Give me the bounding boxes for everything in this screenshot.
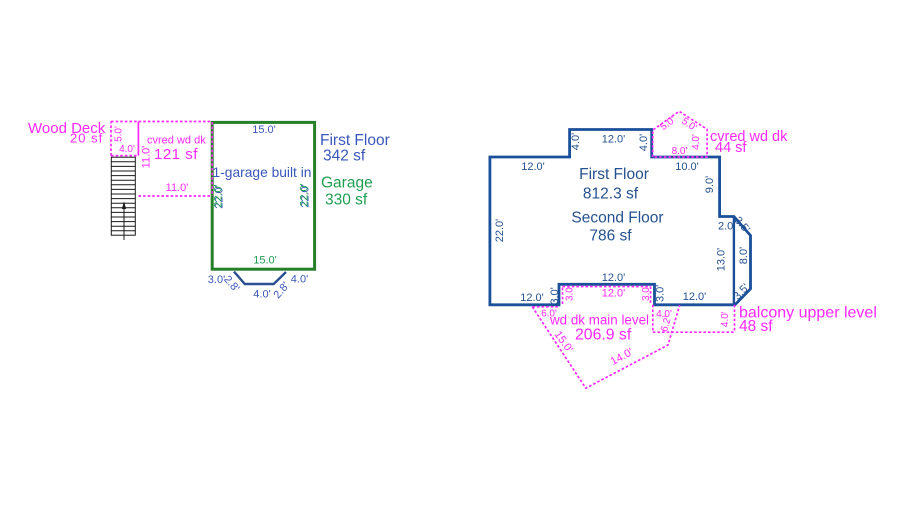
svg-text:15.0': 15.0': [252, 124, 276, 136]
svg-text:First Floor: First Floor: [320, 132, 390, 149]
svg-text:8.0': 8.0': [738, 247, 750, 264]
svg-text:12.0': 12.0': [683, 291, 707, 303]
svg-text:22.0': 22.0': [298, 183, 310, 207]
svg-text:4.0': 4.0': [638, 134, 650, 151]
svg-text:8.0': 8.0': [672, 146, 688, 157]
svg-text:wd dk main level: wd dk main level: [549, 312, 649, 327]
svg-text:10.0': 10.0': [675, 161, 699, 173]
svg-text:812.3 sf: 812.3 sf: [583, 185, 639, 202]
svg-text:5.0': 5.0': [114, 126, 125, 142]
svg-text:342 sf: 342 sf: [323, 148, 366, 165]
svg-text:3.0': 3.0': [654, 285, 666, 302]
svg-text:13.0': 13.0': [715, 248, 727, 272]
svg-text:4.0': 4.0': [119, 144, 135, 155]
svg-text:12.0': 12.0': [602, 288, 626, 300]
svg-text:4.0': 4.0': [253, 289, 270, 301]
svg-text:3.0: 3.0: [641, 287, 652, 301]
svg-text:12.0': 12.0': [521, 161, 545, 173]
svg-text:11.0': 11.0': [166, 182, 189, 194]
svg-text:48 sf: 48 sf: [739, 318, 773, 335]
svg-text:121 sf: 121 sf: [154, 146, 198, 163]
svg-text:First Floor: First Floor: [579, 166, 649, 183]
svg-text:4.0': 4.0': [691, 134, 702, 150]
svg-text:4.0': 4.0': [291, 274, 308, 286]
svg-text:330 sf: 330 sf: [325, 192, 368, 209]
svg-text:1-garage built in: 1-garage built in: [213, 165, 312, 180]
svg-text:9.0': 9.0': [704, 176, 716, 193]
svg-text:3.0: 3.0: [565, 287, 576, 301]
svg-text:15.0': 15.0': [253, 255, 277, 267]
svg-text:22.0': 22.0': [212, 184, 224, 208]
svg-text:206.9 sf: 206.9 sf: [575, 327, 632, 344]
svg-text:44 sf: 44 sf: [715, 140, 747, 156]
svg-text:22.0': 22.0': [494, 219, 506, 243]
svg-text:11.0': 11.0': [140, 146, 152, 169]
svg-text:12.0': 12.0': [602, 134, 626, 146]
svg-text:20 sf: 20 sf: [70, 131, 103, 146]
svg-text:786 sf: 786 sf: [589, 227, 632, 244]
svg-text:4.0': 4.0': [570, 133, 582, 150]
svg-text:12.0': 12.0': [520, 292, 544, 304]
svg-text:cvred wd dk: cvred wd dk: [147, 135, 206, 147]
svg-text:Second Floor: Second Floor: [571, 209, 663, 226]
svg-text:12.0': 12.0': [602, 272, 626, 284]
svg-text:3.0': 3.0': [549, 287, 561, 304]
svg-text:Garage: Garage: [321, 175, 373, 192]
svg-text:4.0': 4.0': [720, 311, 731, 327]
